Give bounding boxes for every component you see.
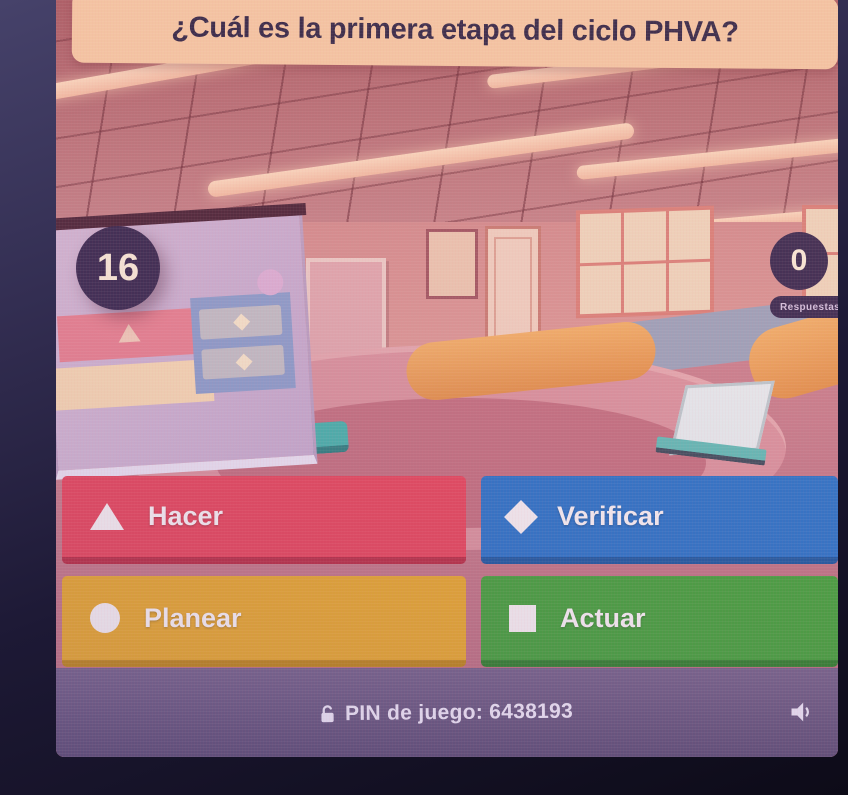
answer-button-triangle[interactable]: Hacer (62, 476, 466, 564)
answers-count: 0 (791, 244, 808, 278)
triangle-icon (118, 323, 141, 342)
unlocked-lock-icon (320, 704, 335, 724)
timer-value: 16 (97, 247, 139, 290)
answer-label: Planear (144, 603, 242, 634)
footer-bar: PIN de juego: 6438193 (56, 668, 838, 757)
slide-preview-blue (190, 292, 296, 394)
diamond-icon (504, 500, 538, 534)
answer-label: Verificar (557, 501, 664, 532)
question-banner: ¿Cuál es la primera etapa del ciclo PHVA… (72, 0, 838, 69)
answers-count-badge: 0 (770, 232, 828, 290)
game-screen: ¿Cuál es la primera etapa del ciclo PHVA… (56, 0, 838, 757)
slide-preview-red (57, 307, 212, 362)
circle-icon (90, 603, 120, 633)
speaker-icon[interactable] (788, 698, 816, 726)
large-window (576, 206, 714, 319)
game-pin-badge: PIN de juego: 6438193 (320, 699, 573, 726)
small-window (426, 229, 478, 299)
game-pin-text: PIN de juego: 6438193 (345, 699, 573, 725)
answer-label: Hacer (148, 501, 223, 532)
triangle-icon (90, 503, 124, 530)
diamond-icon (233, 314, 250, 331)
photo-frame: ¿Cuál es la primera etapa del ciclo PHVA… (0, 0, 848, 795)
question-text: ¿Cuál es la primera etapa del ciclo PHVA… (171, 11, 739, 49)
answer-button-diamond[interactable]: Verificar (481, 476, 838, 564)
answer-grid: Hacer Verificar Planear Actuar (62, 476, 838, 667)
answer-button-square[interactable]: Actuar (481, 576, 838, 667)
answers-count-label: Respuestas (770, 296, 838, 318)
slide-preview-cream (56, 359, 214, 411)
answer-label: Actuar (560, 603, 646, 634)
answer-button-circle[interactable]: Planear (62, 576, 466, 667)
square-icon (509, 605, 536, 632)
timer-badge: 16 (76, 226, 160, 310)
diamond-icon (236, 354, 253, 371)
